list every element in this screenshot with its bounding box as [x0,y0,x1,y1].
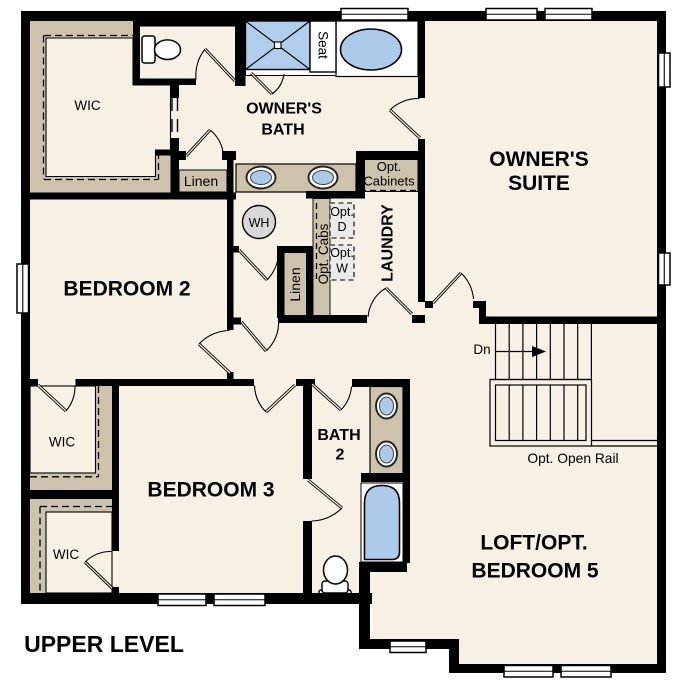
svg-text:W: W [336,262,348,276]
svg-text:Opt.: Opt. [377,159,402,174]
svg-text:WIC: WIC [53,547,79,562]
svg-text:Opt.: Opt. [330,246,354,260]
svg-text:WH: WH [249,216,270,230]
svg-text:Opt. Cabs: Opt. Cabs [316,223,331,284]
svg-text:Cabinets: Cabinets [363,174,415,189]
svg-text:WIC: WIC [49,435,75,450]
svg-text:BEDROOM 5: BEDROOM 5 [471,560,599,583]
svg-text:Linen: Linen [184,173,218,189]
svg-text:BATH: BATH [261,122,304,139]
svg-text:LOFT/OPT.: LOFT/OPT. [480,532,587,555]
svg-text:OWNER'S: OWNER'S [489,148,589,171]
svg-text:OWNER'S: OWNER'S [246,101,322,118]
svg-text:WIC: WIC [74,98,100,113]
svg-text:LAUNDRY: LAUNDRY [380,204,397,282]
svg-text:BATH: BATH [317,427,360,444]
svg-text:BEDROOM 2: BEDROOM 2 [63,278,190,301]
svg-text:Opt.: Opt. [330,205,354,219]
svg-text:Opt. Open Rail: Opt. Open Rail [527,451,618,466]
svg-text:2: 2 [336,447,345,464]
svg-text:D: D [337,220,346,234]
svg-text:BEDROOM 3: BEDROOM 3 [147,479,274,502]
svg-text:UPPER LEVEL: UPPER LEVEL [24,631,184,657]
svg-text:Seat: Seat [316,31,331,59]
svg-text:Linen: Linen [287,267,303,301]
svg-text:Dn: Dn [473,342,490,357]
svg-text:SUITE: SUITE [508,172,570,195]
